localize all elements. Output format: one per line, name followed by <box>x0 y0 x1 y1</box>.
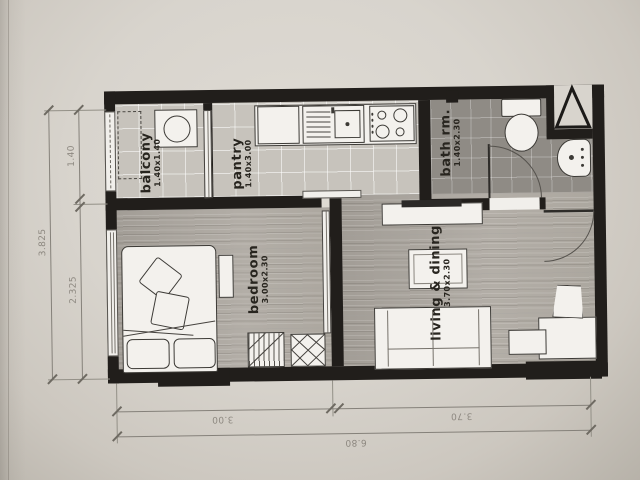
dim-bottom-right: 3.70 <box>451 410 473 420</box>
dim-left-total: 3.825 <box>38 228 48 256</box>
basin-hole <box>581 156 584 159</box>
desk <box>538 317 597 360</box>
room-label-pantry: pantry 1.40x3.00 <box>231 137 254 189</box>
wall-bath-left <box>418 100 431 206</box>
vent-louver-line <box>109 114 111 188</box>
faucet <box>331 107 334 113</box>
room-size: 1.40x3.00 <box>244 139 253 187</box>
paper-edge <box>8 0 9 480</box>
vent-symbol <box>446 91 458 103</box>
desk-return <box>508 329 546 355</box>
dim-bottom-total: 6.80 <box>345 437 367 447</box>
dim-bottom-left: 3.00 <box>212 414 234 424</box>
burner-small <box>377 111 386 120</box>
wall-niche-bottom <box>547 129 593 140</box>
room-label-bath: bath rm. 1.40x2.30 <box>439 109 462 177</box>
drainboard <box>306 111 330 138</box>
kitchen-threshold <box>302 190 361 199</box>
wardrobe <box>290 333 325 366</box>
basin-hole <box>581 164 584 167</box>
shaft-niche <box>554 85 593 130</box>
room-size: 1.40x2.30 <box>453 118 462 166</box>
tv <box>402 200 462 208</box>
stove-knob <box>371 125 373 128</box>
burner-large <box>393 108 407 122</box>
side-table <box>218 255 234 298</box>
fridge <box>257 106 300 145</box>
dim-left-bottom: 2.325 <box>69 276 79 304</box>
room-label-balcony: balcony 1.40x1.40 <box>140 132 163 193</box>
dimension-line-bottom-inner <box>116 405 591 413</box>
wall-bath-bottom-right <box>539 197 545 209</box>
bedroom-window <box>106 229 119 356</box>
faucet-dot <box>569 155 574 160</box>
room-size: 1.40x1.40 <box>153 139 162 187</box>
stove <box>369 105 414 142</box>
basin-hole <box>581 148 584 151</box>
sink-basin <box>334 110 360 138</box>
bathroom-sink <box>557 139 592 177</box>
closet-shelves <box>247 332 284 368</box>
kitchen-sink <box>302 105 365 144</box>
room-label-living: living & dining 3.70x2.30 <box>429 225 453 341</box>
bath-door-threshold <box>489 197 539 210</box>
drain-dot <box>345 122 349 126</box>
room-size: 3.00x2.30 <box>261 255 270 303</box>
stove-knob <box>371 119 373 122</box>
dimension-line-left-inner <box>78 110 83 380</box>
pillow <box>173 338 215 369</box>
burner-small <box>396 127 405 136</box>
sofa-arm-line <box>478 309 480 365</box>
desk-chair <box>552 284 584 318</box>
washer-drum <box>163 115 190 142</box>
pillow <box>126 339 169 370</box>
dimension-line-left-outer <box>48 110 53 380</box>
sofa-arm-line <box>387 311 389 367</box>
dim-left-top: 1.40 <box>67 145 77 167</box>
floor-plan: balcony 1.40x1.40 pantry 1.40x3.00 bath … <box>104 85 608 386</box>
room-label-bedroom: bedroom 3.00x2.30 <box>247 244 270 314</box>
stove-knob <box>371 113 373 116</box>
balcony-sliding-door <box>203 110 212 198</box>
cushion <box>150 291 190 331</box>
burner-large <box>375 125 389 139</box>
bedroom-sliding-door <box>322 210 332 333</box>
window-pane-line <box>113 232 116 353</box>
room-size: 3.70x2.30 <box>443 259 452 307</box>
balcony-vent <box>104 111 116 191</box>
stove-knob <box>372 131 374 134</box>
wall-bedroom-right <box>329 195 343 366</box>
